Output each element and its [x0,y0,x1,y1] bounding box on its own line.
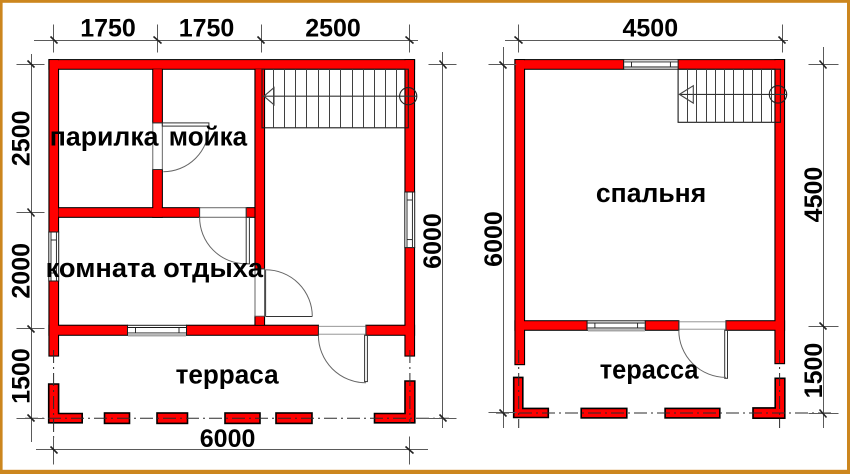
svg-text:6000: 6000 [480,211,508,267]
svg-text:2500: 2500 [305,14,361,42]
svg-text:парилка: парилка [50,122,160,152]
svg-text:2000: 2000 [8,243,36,299]
svg-text:1750: 1750 [80,14,136,42]
svg-text:терраса: терраса [176,360,280,390]
svg-text:1500: 1500 [8,348,36,404]
svg-text:терасса: терасса [600,354,700,384]
svg-text:4500: 4500 [800,167,828,223]
svg-text:комната отдыха: комната отдыха [46,253,264,283]
svg-text:6000: 6000 [419,213,447,269]
svg-text:1750: 1750 [179,14,235,42]
svg-text:мойка: мойка [169,122,248,152]
svg-text:1500: 1500 [800,343,828,399]
svg-text:4500: 4500 [622,14,678,42]
svg-text:6000: 6000 [200,425,256,453]
svg-text:2500: 2500 [8,110,36,166]
svg-text:спальня: спальня [596,178,706,208]
